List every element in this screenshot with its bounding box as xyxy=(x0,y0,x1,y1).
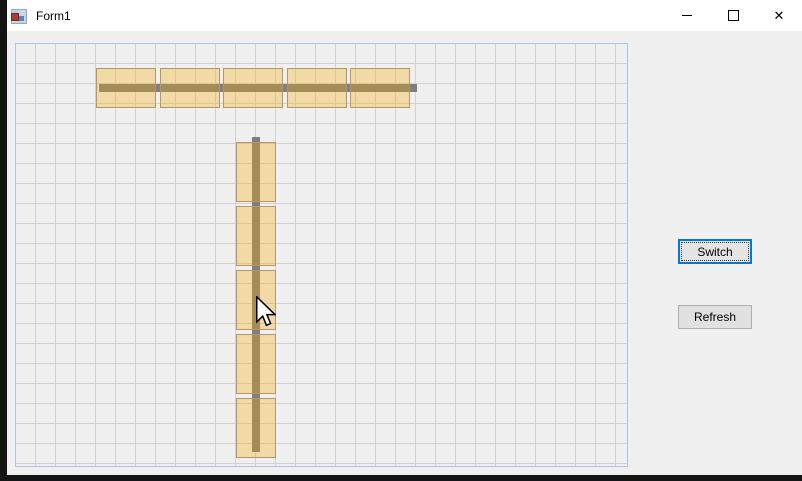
grid-panel xyxy=(15,43,628,467)
v-tile-1[interactable] xyxy=(236,142,276,202)
v-tile-2[interactable] xyxy=(236,206,276,266)
caption-buttons: ✕ xyxy=(664,0,802,31)
screen: { "window": { "title": "Form1", "control… xyxy=(0,0,802,481)
window-title: Form1 xyxy=(36,9,71,23)
v-tile-5[interactable] xyxy=(236,398,276,458)
v-tile-4[interactable] xyxy=(236,334,276,394)
v-tile-3[interactable] xyxy=(236,270,276,330)
switch-button[interactable]: Switch xyxy=(678,239,752,264)
minimize-button[interactable] xyxy=(664,0,710,31)
close-icon: ✕ xyxy=(774,9,785,22)
app-icon xyxy=(11,8,27,24)
h-tile-2[interactable] xyxy=(160,68,220,108)
maximize-button[interactable] xyxy=(710,0,756,31)
close-button[interactable]: ✕ xyxy=(756,0,802,31)
maximize-icon xyxy=(728,10,739,21)
minimize-icon xyxy=(682,15,692,16)
board xyxy=(16,44,627,466)
h-tile-1[interactable] xyxy=(96,68,156,108)
form-window: Form1 ✕ Switch Refresh xyxy=(7,0,802,475)
h-tile-4[interactable] xyxy=(287,68,347,108)
h-tile-5[interactable] xyxy=(350,68,410,108)
title-bar: Form1 ✕ xyxy=(7,0,802,31)
refresh-button[interactable]: Refresh xyxy=(678,305,752,329)
h-tile-3[interactable] xyxy=(223,68,283,108)
